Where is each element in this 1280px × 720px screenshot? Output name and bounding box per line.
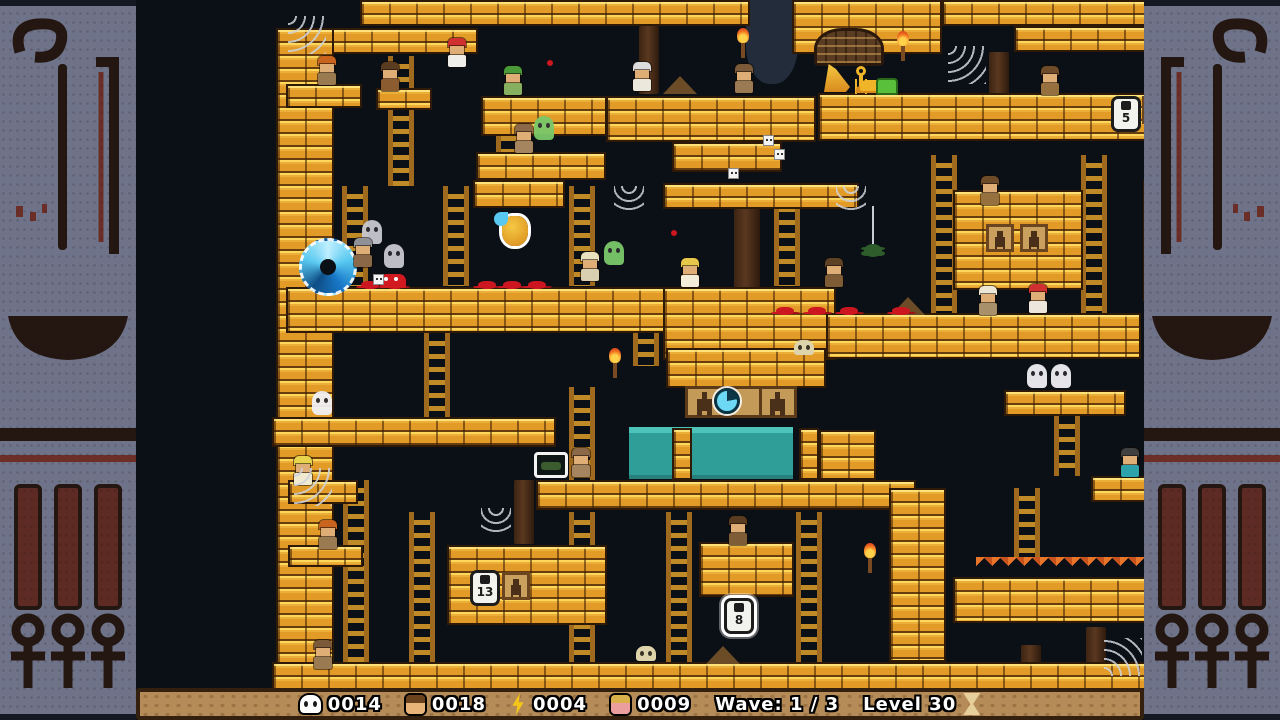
sand-mound: [663, 76, 697, 94]
web-sprite: [1104, 638, 1142, 676]
playfield[interactable]: 561385: [136, 0, 1144, 720]
blonde-girl: [679, 258, 701, 288]
mummy: [312, 640, 334, 670]
white-box-sprite: [774, 149, 785, 160]
girl-counter: 0009: [611, 694, 691, 715]
numbered-lock: 13: [470, 570, 500, 606]
torch-sprite: [610, 348, 620, 378]
monkey: [1039, 66, 1061, 96]
wood-pillar: [514, 480, 534, 544]
white-box-sprite: [728, 168, 739, 179]
torch-sprite: [898, 31, 908, 61]
brick-platform: [672, 428, 692, 480]
gray-ghost: [384, 244, 404, 268]
hat-explorer: [316, 56, 338, 86]
boy-face-icon: [406, 695, 425, 714]
boy-counter: 0018: [406, 694, 486, 715]
ladder: [1081, 155, 1107, 313]
splat-sprite: [528, 281, 546, 289]
web-sprite: [288, 16, 326, 54]
glyph-tile-row: [685, 386, 797, 418]
sarcophagus-tile: [986, 224, 1014, 252]
brick-platform: [672, 142, 782, 172]
brick-platform: [889, 488, 946, 662]
mummy: [570, 448, 592, 478]
ladder: [443, 186, 469, 286]
sarcophagus-tile: [1142, 96, 1144, 124]
boy-count: 0018: [432, 694, 486, 715]
peeking-head: [727, 516, 749, 546]
girl-count: 0009: [637, 694, 691, 715]
wood-pillar: [734, 209, 760, 289]
mace-mummy: [352, 238, 374, 268]
web-sprite: [836, 186, 866, 210]
splat-sprite: [776, 307, 794, 315]
sarcophagus-tile: [1020, 224, 1048, 252]
web-sprite: [948, 46, 986, 84]
splat-sprite: [808, 307, 826, 315]
elder-mummy: [631, 62, 653, 92]
brick-platform: [606, 96, 816, 142]
ladder-climber: [579, 252, 601, 282]
sand-mound: [706, 646, 740, 664]
numbered-lock: 8: [724, 598, 754, 634]
green-chest-sprite: [876, 78, 898, 95]
green-ghost: [534, 116, 554, 140]
brick-platform: [476, 152, 606, 180]
brick-platform: [819, 430, 876, 480]
splat-sprite: [547, 60, 553, 66]
girl-face-icon: [611, 695, 630, 714]
skull-counter: 0014: [300, 694, 382, 715]
skull-count: 0014: [328, 694, 382, 715]
white-box-sprite: [763, 135, 774, 146]
splat-sprite: [840, 307, 858, 315]
ladder: [343, 480, 369, 688]
brick-platform: [826, 313, 1141, 359]
item-pickup: [534, 452, 568, 478]
right-hieroglyph-border: [1144, 0, 1280, 720]
peeking-head: [979, 176, 1001, 206]
brick-platform: [272, 662, 1144, 690]
brick-platform: [360, 0, 750, 26]
torch-sprite: [738, 28, 748, 58]
brick-platform: [818, 93, 1144, 141]
torch-sprite: [865, 543, 875, 573]
white-ghost: [312, 391, 332, 415]
brick-platform: [276, 28, 334, 688]
ladder: [424, 333, 450, 419]
fire-spikes: [976, 557, 1144, 577]
ladder: [1054, 416, 1080, 476]
ladder: [666, 512, 692, 678]
brick-platform: [1143, 180, 1144, 302]
timer-clock: [714, 388, 740, 414]
splat-sprite: [892, 307, 910, 315]
web-sprite: [294, 468, 332, 506]
brick-platform: [286, 84, 362, 108]
brick-platform: [699, 542, 794, 597]
wave-indicator: Wave: 1 / 3: [715, 694, 839, 715]
ground-skull: [636, 646, 656, 661]
bear-mummy: [823, 258, 845, 288]
numbered-lock: 5: [1111, 96, 1141, 132]
white-ghost: [1051, 364, 1071, 388]
hieroglyph-art: [0, 0, 136, 720]
mummy: [733, 64, 755, 94]
mummy: [513, 124, 535, 154]
white-ghost: [1027, 364, 1047, 388]
green-ghost: [604, 241, 624, 265]
redhead-girl: [446, 38, 468, 68]
brick-platform: [799, 428, 819, 480]
brick-platform: [942, 0, 1144, 26]
brick-platform: [1091, 476, 1144, 502]
water-pool: [629, 427, 793, 479]
splat-sprite: [671, 230, 677, 236]
white-box-sprite: [373, 274, 384, 285]
brick-platform: [536, 480, 916, 510]
bolt-count: 0004: [533, 694, 587, 715]
hieroglyph-art: [1144, 0, 1280, 720]
splat-sprite: [503, 281, 521, 289]
hourglass-icon: [963, 693, 980, 715]
bolt-counter: 0004: [510, 693, 587, 715]
splat-sprite: [478, 281, 496, 289]
hud-bar: 0014 0018 0004 0009 Wave: 1 / 3 Level 30: [136, 688, 1144, 720]
game-window: 561385 0014 0018 0004 0009 Wave: 1 / 3 L…: [0, 0, 1280, 720]
brick-platform: [1004, 390, 1126, 416]
hedgehog-mob: [379, 62, 401, 92]
brick-platform: [473, 180, 565, 208]
skull-icon: [300, 695, 321, 713]
green-spider: [864, 244, 882, 257]
web-sprite: [481, 508, 511, 532]
brick-platform: [663, 183, 859, 209]
brick-platform: [1014, 26, 1144, 52]
ladder: [796, 512, 822, 678]
hat-explorer: [317, 520, 339, 550]
ground-skull: [794, 340, 814, 355]
wave-label: Wave: 1 / 3: [715, 694, 839, 715]
left-hieroglyph-border: [0, 0, 136, 720]
brick-platform: [272, 417, 556, 447]
highlighted-pot: [502, 216, 528, 246]
level-label: Level 30: [863, 694, 956, 715]
teal-shirt-kid: [1119, 448, 1141, 478]
white-hat-man: [977, 286, 999, 316]
gold-harp: [824, 64, 850, 92]
ladder: [1014, 488, 1040, 558]
sarcophagus-tile: [502, 572, 530, 600]
lightning-icon: [510, 693, 526, 715]
redhead-man: [1027, 284, 1049, 314]
level-indicator: Level 30: [863, 693, 980, 715]
wood-pillar: [989, 52, 1009, 96]
brick-platform: [953, 577, 1144, 623]
green-bird: [502, 66, 524, 96]
brick-platform: [953, 190, 1083, 290]
web-sprite: [614, 186, 644, 210]
blue-portal: [299, 238, 357, 296]
hieroglyph-tablet: [814, 28, 884, 66]
